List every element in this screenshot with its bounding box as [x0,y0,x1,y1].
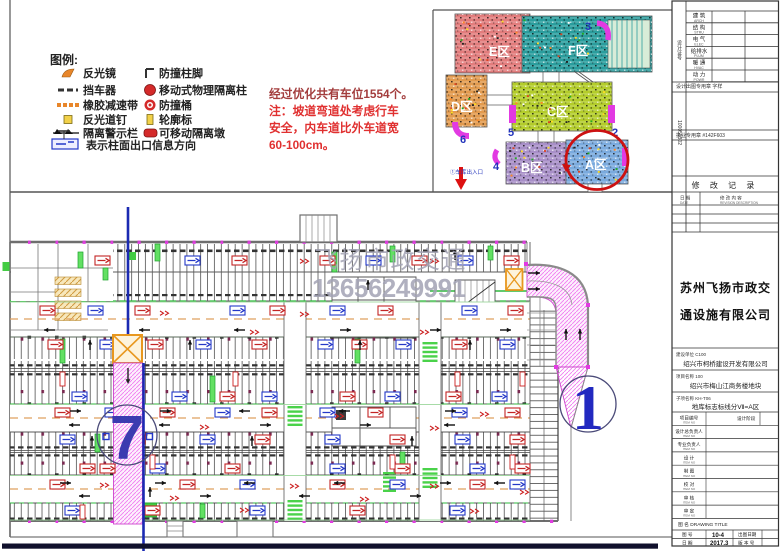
svg-text:B区: B区 [521,161,543,175]
svg-text:修 改 记 录: 修 改 记 录 [692,180,759,190]
svg-text:设计出图专用章 字样: 设计出图专用章 字样 [676,83,722,90]
svg-text:D区: D区 [451,100,473,114]
svg-text:项目名称 100: 项目名称 100 [676,373,703,380]
svg-text:ITEM NO: ITEM NO [683,461,696,465]
svg-text:ITEM NO: ITEM NO [683,514,696,518]
svg-text:注：坡道弯道处考虑行车: 注：坡道弯道处考虑行车 [269,104,399,118]
svg-text:3: 3 [585,21,591,33]
svg-text:绍兴市梅山江商务楼地块: 绍兴市梅山江商务楼地块 [690,381,762,390]
svg-text:可移动隔离墩: 可移动隔离墩 [159,126,226,140]
svg-text:REVISION DESCRIPTION: REVISION DESCRIPTION [720,201,759,205]
svg-text:ITEM NO: ITEM NO [683,500,696,504]
svg-text:防撞柱脚: 防撞柱脚 [159,66,203,80]
svg-text:A区: A区 [585,158,607,172]
svg-text:1: 1 [572,372,604,443]
svg-text:6: 6 [460,134,466,146]
svg-text:ITEM NO: ITEM NO [683,474,696,478]
svg-text:防撞桶: 防撞桶 [159,98,192,112]
svg-text:设计阶段: 设计阶段 [737,415,756,422]
svg-text:ITEM NO: ITEM NO [683,421,696,425]
svg-text:图 名 DRAWING TITLE: 图 名 DRAWING TITLE [678,521,728,528]
svg-text:DATE: DATE [680,201,688,205]
svg-text:ITEM NO: ITEM NO [683,487,696,491]
svg-text:F区: F区 [568,44,589,58]
svg-text:10-4: 10-4 [712,533,725,539]
svg-text:60-100cm。: 60-100cm。 [269,138,335,152]
svg-text:HVAC: HVAC [694,66,704,70]
svg-text:C区: C区 [547,105,569,119]
svg-text:版 本 号: 版 本 号 [738,540,755,547]
svg-text:安全，内车道比外车道宽: 安全，内车道比外车道宽 [269,121,399,135]
svg-text:经过优化共有车位1554个。: 经过优化共有车位1554个。 [269,87,413,101]
svg-text:ARCH: ARCH [694,19,704,23]
svg-text:移动式物理隔离柱: 移动式物理隔离柱 [159,83,247,97]
svg-text:E区: E区 [489,45,510,59]
svg-text:图例:: 图例: [50,52,78,67]
svg-text:①车库出入口: ①车库出入口 [450,168,483,176]
svg-text:绍兴市柯桥建设开发有限公司: 绍兴市柯桥建设开发有限公司 [683,359,768,368]
svg-text:ITEM NO: ITEM NO [683,447,696,451]
svg-text:轮廓标: 轮廓标 [159,113,192,127]
svg-text:建设单位 C100: 建设单位 C100 [676,351,707,358]
svg-text:表示柱面出口信息方向: 表示柱面出口信息方向 [85,138,196,152]
svg-text:设计证号: 设计证号 [676,39,682,61]
svg-text:隔离警示栏: 隔离警示栏 [83,126,138,140]
svg-text:ELEC: ELEC [694,42,704,46]
svg-text:地库标志标线分Ⅶ=A区: 地库标志标线分Ⅶ=A区 [692,402,760,411]
svg-text:反光镜: 反光镜 [83,66,116,80]
svg-text:橡胶减速带: 橡胶减速带 [83,98,138,112]
svg-text:子项名称 KH-T06: 子项名称 KH-T06 [676,395,711,402]
svg-text:ITEM NO: ITEM NO [683,434,696,438]
svg-text:PLUM: PLUM [694,54,704,58]
svg-text:飞扬市政交通: 飞扬市政交通 [314,247,467,274]
svg-text:出图日期: 出图日期 [738,531,757,538]
svg-text:POWR: POWR [694,78,705,82]
svg-text:苏州飞扬市政交: 苏州飞扬市政交 [680,280,771,295]
svg-text:通设施有限公司: 通设施有限公司 [680,307,771,322]
svg-text:4: 4 [493,161,500,173]
svg-text:13656249991: 13656249991 [312,273,466,303]
svg-text:STRU: STRU [694,31,704,35]
svg-text:执业专用章 #142F603: 执业专用章 #142F603 [676,132,725,139]
svg-text:5: 5 [508,127,514,139]
svg-text:2017.3: 2017.3 [710,541,729,547]
svg-text:挡车器: 挡车器 [83,83,117,97]
svg-text:反光道钉: 反光道钉 [83,113,127,127]
svg-text:7: 7 [110,404,144,473]
